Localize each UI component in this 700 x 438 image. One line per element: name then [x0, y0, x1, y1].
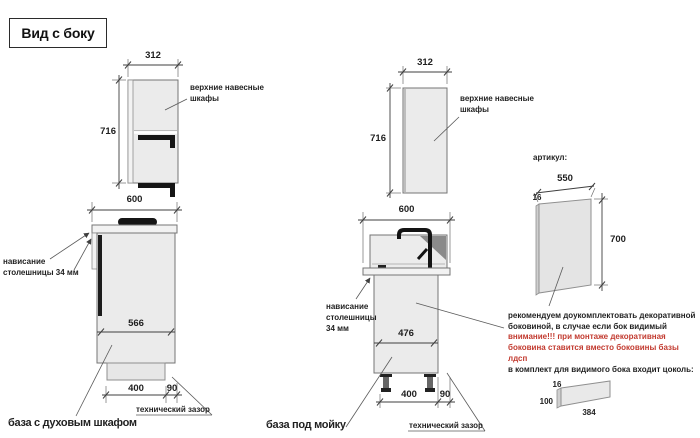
page-title: Вид с боку [9, 18, 107, 48]
dim-oven-counter-width: 600 [92, 194, 177, 205]
dim-sink-gap: 90 [433, 389, 457, 400]
dim-oven-inner-width: 566 [97, 318, 175, 329]
dim-oven-upper-width: 312 [128, 50, 178, 61]
countertop-overhang-edge [92, 233, 97, 269]
dim-sink-inner-width: 476 [374, 328, 438, 339]
dim-oven-upper-height: 716 [88, 126, 116, 137]
oven-plinth [107, 363, 165, 380]
overhang-sink-line1: нависание [326, 301, 377, 312]
dim-plinth-width: 384 [577, 408, 601, 417]
decorative-panel-drawing [534, 183, 608, 306]
oven-door-edge [98, 235, 102, 316]
dim-panel-thickness: 16 [529, 193, 545, 202]
dim-sink-upper-width: 312 [403, 57, 447, 68]
overhang-label-oven: нависание столешницы 34 мм [3, 256, 79, 278]
oven-base-body [97, 233, 175, 363]
overhang-oven-line1: нависание [3, 256, 79, 267]
dim-plinth-thickness: 16 [549, 380, 565, 389]
oven-upper-cabinet-side-panel [128, 80, 133, 183]
tech-gap-label-oven: технический зазор [136, 404, 210, 415]
dim-oven-gap: 90 [160, 383, 184, 394]
upper-cabinets-label-line2: шкафы [190, 93, 264, 104]
note-line2: боковиной, в случае если бок видимый [508, 322, 700, 333]
plinth-front-face [561, 381, 610, 406]
sink-base-caption: база под мойку [266, 419, 346, 431]
overhang-sink-line3: 34 мм [326, 323, 377, 334]
upper-cabinets-label-2: верхние навесные шкафы [460, 93, 534, 115]
dim-panel-width: 550 [540, 173, 590, 184]
panel-front-face [539, 199, 591, 293]
upper-cabinets-label2-line2: шкафы [460, 104, 534, 115]
article-label: артикул: [533, 152, 567, 163]
oven-base-caption: база с духовым шкафом [8, 417, 137, 429]
note-line4-warning: боковина ставится вместо боковины базы л… [508, 343, 700, 364]
dim-sink-upper-height: 716 [358, 133, 386, 144]
overhang-label-sink: нависание столешницы 34 мм [326, 301, 377, 334]
sink-base-drawing [346, 66, 504, 431]
overhang-oven-line2: столешницы 34 мм [3, 267, 79, 278]
note-line1: рекомендуем доукомплектовать декоративно… [508, 311, 700, 322]
oven-base-drawing [50, 59, 212, 416]
dim-panel-height: 700 [606, 234, 630, 245]
note-line5: в комплект для видимого бока входит цоко… [508, 365, 700, 376]
recommendation-note: рекомендуем доукомплектовать декоративно… [508, 311, 700, 375]
note-line3-warning: внимание!!! при монтаже декоративная [508, 332, 700, 343]
dim-sink-plinth-width: 400 [380, 389, 438, 400]
overhang-sink-line2: столешницы [326, 312, 377, 323]
tech-gap-label-sink: технический зазор [409, 420, 483, 431]
sink-countertop [363, 268, 450, 275]
oven-countertop [92, 225, 177, 233]
plinth-edge-face [557, 388, 561, 408]
upper-cabinets-label: верхние навесные шкафы [190, 82, 264, 104]
sink-base-body [374, 275, 438, 373]
upper-cabinets-label-line1: верхние навесные [190, 82, 264, 93]
sink-upper-cabinet-outline [403, 88, 447, 193]
dim-oven-plinth-width: 400 [106, 383, 166, 394]
dim-sink-counter-width: 600 [363, 204, 450, 215]
technical-drawing-page: Вид с боку 312 716 верхние навесные шкаф… [0, 0, 700, 438]
dim-plinth-height: 100 [533, 397, 553, 406]
upper-cabinets-label2-line1: верхние навесные [460, 93, 534, 104]
dim-line-panel-550 [536, 186, 594, 193]
